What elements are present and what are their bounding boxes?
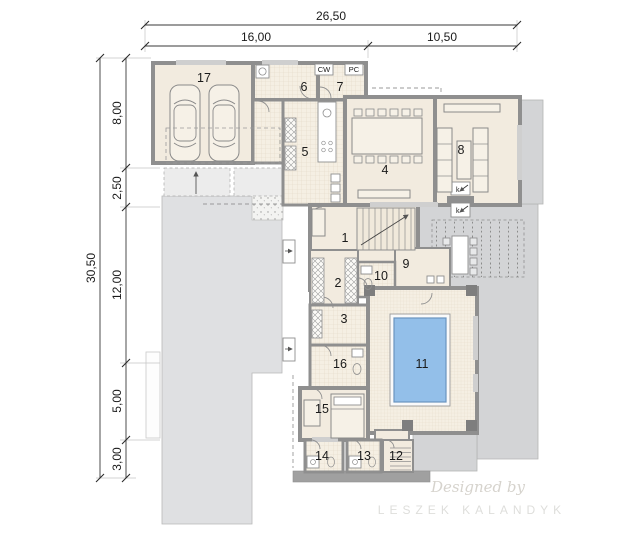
room-label-11: 11 xyxy=(416,357,429,371)
west-retaining-wall xyxy=(146,352,160,438)
south-terrace-paving xyxy=(413,433,477,471)
dim-left-total: 30,50 xyxy=(84,253,98,283)
dim-top-right: 10,50 xyxy=(427,30,457,44)
label-cw: CW xyxy=(318,65,331,74)
room-label-15: 15 xyxy=(315,402,329,416)
west-step-upper xyxy=(283,240,295,263)
room-label-6: 6 xyxy=(301,80,308,94)
sideboard xyxy=(358,190,410,198)
dim-left-s0: 8,00 xyxy=(110,101,124,125)
dim-left-s3: 5,00 xyxy=(110,389,124,413)
floor-plan-page: 26,50 16,00 10,50 30,50 8,00 2,50 12,00 … xyxy=(0,0,638,556)
room-label-3: 3 xyxy=(341,312,348,326)
room-label-16: 16 xyxy=(333,357,347,371)
label-pc: PC xyxy=(349,65,360,74)
car-icon xyxy=(209,85,239,161)
room-label-10: 10 xyxy=(374,269,388,283)
dim-top-total: 26,50 xyxy=(316,9,346,23)
tv-sideboard xyxy=(444,104,500,112)
room-label-13: 13 xyxy=(357,449,371,463)
dim-left-s2: 12,00 xyxy=(110,270,124,300)
dim-left-s1: 2,50 xyxy=(110,176,124,200)
room-label-17: 17 xyxy=(197,71,211,85)
dim-left-s4: 3,00 xyxy=(110,447,124,471)
room-label-4: 4 xyxy=(382,163,389,177)
washer-icon xyxy=(256,65,269,78)
room-label-1: 1 xyxy=(342,231,349,245)
room-label-2: 2 xyxy=(335,276,342,290)
dim-top-left: 16,00 xyxy=(241,30,271,44)
watermark-name: LESZEK KALANDYK xyxy=(378,503,566,517)
car-icon xyxy=(170,85,200,161)
room-label-12: 12 xyxy=(389,449,403,463)
room-label-14: 14 xyxy=(315,449,329,463)
northeast-terrace-strip xyxy=(521,100,543,204)
watermark-script: Designed by xyxy=(430,478,526,496)
label-k-lower: k xyxy=(456,208,460,215)
room-label-9: 9 xyxy=(403,257,410,271)
stairs-main xyxy=(357,208,415,250)
entry-vestibule xyxy=(253,100,283,163)
k-step-upper xyxy=(451,182,470,195)
garage-apron-left xyxy=(164,168,230,196)
k-step-lower xyxy=(451,203,470,217)
room-label-8: 8 xyxy=(458,143,465,157)
floor-plan-drawing: 26,50 16,00 10,50 30,50 8,00 2,50 12,00 … xyxy=(0,0,638,556)
west-step-lower xyxy=(283,338,295,361)
hall-bench xyxy=(312,209,325,236)
designer-watermark: Designed by LESZEK KALANDYK xyxy=(378,478,566,517)
driveway-paving xyxy=(162,196,282,524)
label-k-upper: k xyxy=(456,187,460,194)
outdoor-table xyxy=(452,236,468,274)
room-label-7: 7 xyxy=(337,80,344,94)
room-label-5: 5 xyxy=(302,145,309,159)
